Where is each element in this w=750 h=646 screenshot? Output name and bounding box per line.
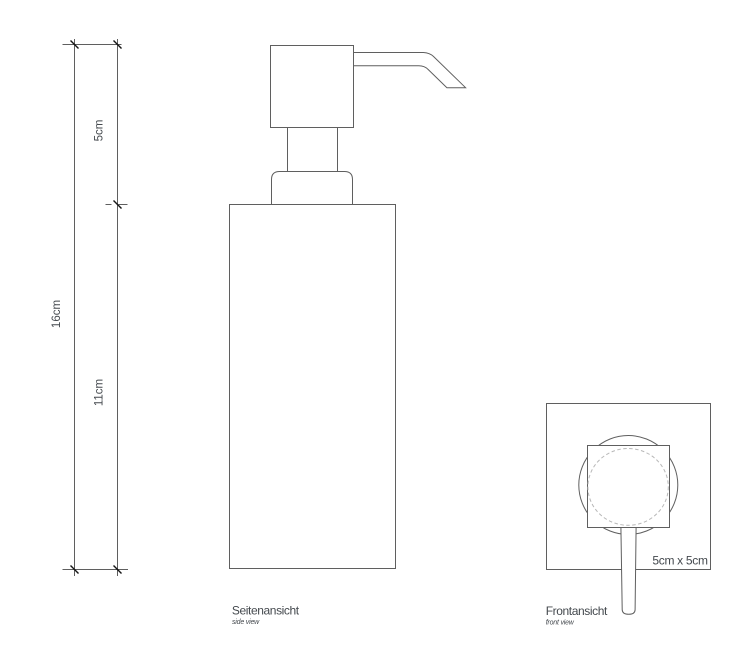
svg-text:side view: side view [232,619,260,626]
svg-text:Seitenansicht: Seitenansicht [232,604,300,618]
svg-text:11cm: 11cm [94,379,106,406]
svg-text:front view: front view [546,619,575,626]
svg-text:5cm x 5cm: 5cm x 5cm [652,554,708,568]
svg-text:5cm: 5cm [94,120,106,142]
svg-text:Frontansicht: Frontansicht [546,604,608,618]
svg-text:16cm: 16cm [51,300,63,328]
